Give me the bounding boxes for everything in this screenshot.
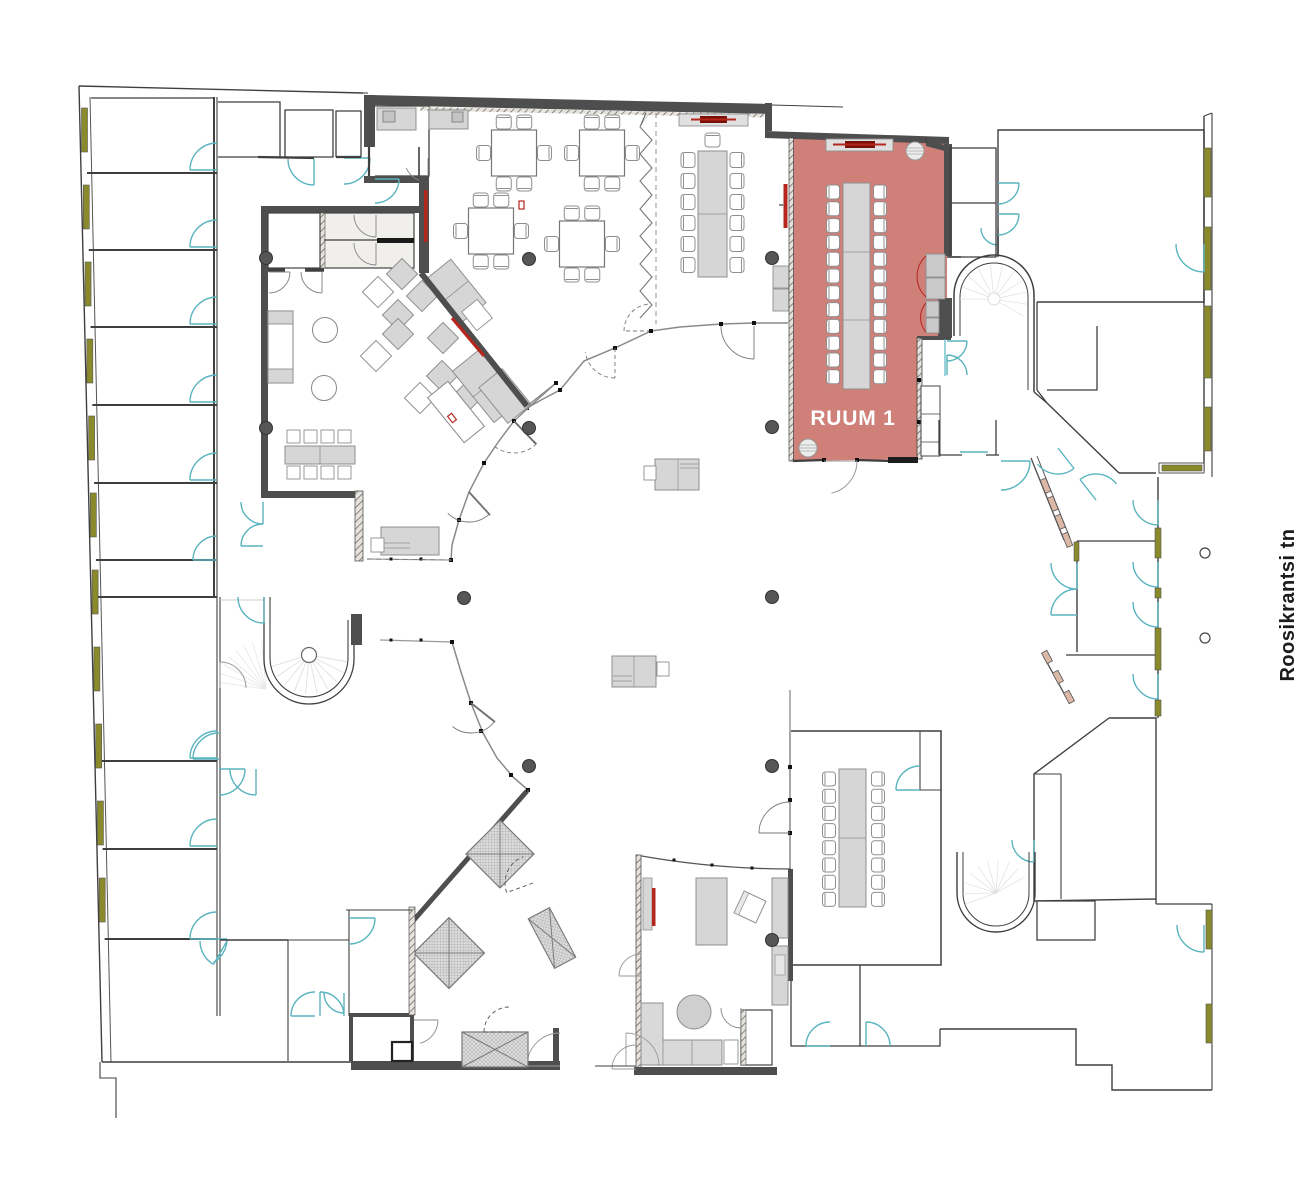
svg-text:RUUM 1: RUUM 1 [810,407,895,430]
svg-text:Roosikrantsi tn: Roosikrantsi tn [1277,528,1299,681]
